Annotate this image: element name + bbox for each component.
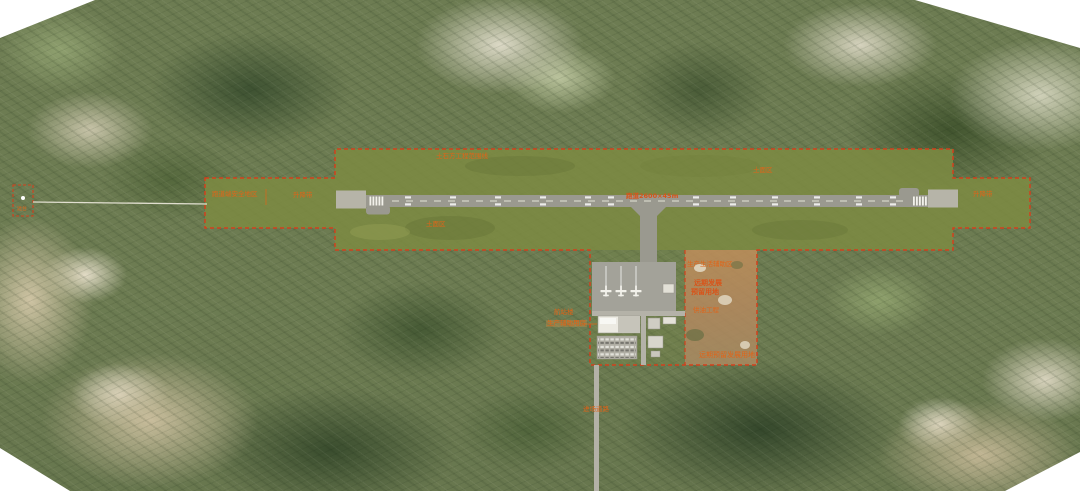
photo-corner	[0, 448, 70, 491]
label-runway: 跑道2600×45m	[626, 193, 678, 200]
label-future-dev-2: 预留用地	[691, 289, 719, 296]
navaid-dot	[21, 196, 25, 200]
graded-texture	[350, 224, 410, 240]
label-future-reserve: 远期预留发展用地	[699, 352, 755, 359]
graded-texture	[752, 220, 848, 240]
airport-plan-map: 土石方工程范围线 土面区 跑道端安全地区 升降带 跑道2600×45m 升降带 …	[0, 0, 1080, 491]
blast-pad-left	[336, 191, 366, 209]
label-strip-left: 升降带	[293, 192, 313, 199]
plan-overlay	[0, 0, 1080, 491]
earth-spot	[718, 295, 732, 305]
label-resa-left: 跑道端安全地区	[212, 191, 258, 198]
support-building	[648, 318, 660, 329]
label-terminal: 航站楼	[554, 309, 574, 316]
label-soil-area: 土面区	[426, 221, 446, 228]
runway-turnpad-right	[899, 188, 919, 197]
photo-corner	[1005, 452, 1080, 491]
earth-spot	[740, 341, 750, 349]
terminal-roof-detail	[618, 316, 640, 333]
terminal-frontage-road	[592, 311, 685, 316]
runway-turnpad-left	[366, 206, 390, 215]
taxiway	[640, 207, 657, 264]
label-navaid: 远台	[17, 207, 27, 212]
parked-cars	[598, 337, 636, 358]
label-strip-right: 升降带	[973, 191, 993, 198]
label-future-dev-1: 远期发展	[694, 280, 722, 287]
label-aux-area: 生产生活辅助区	[687, 261, 733, 268]
apron-service-building	[663, 284, 674, 293]
label-access-road: 进场道路	[583, 406, 609, 413]
support-building	[663, 317, 676, 324]
support-building	[648, 336, 663, 348]
label-fuel: 供油工程	[693, 307, 719, 314]
label-earthwork-boundary: 土石方工程范围线	[436, 153, 488, 160]
blast-pad-right	[928, 190, 958, 208]
terminal-roof-detail	[600, 318, 616, 324]
label-support-buildings: 生产辅助用房	[546, 320, 587, 327]
label-soil-area: 土面区	[753, 167, 773, 174]
support-building	[651, 351, 660, 357]
graded-texture	[405, 216, 495, 240]
internal-road	[641, 316, 646, 365]
extended-centerline	[33, 202, 207, 204]
earth-veg	[686, 329, 704, 341]
access-road	[594, 365, 599, 491]
graded-texture	[640, 155, 760, 177]
photo-corner	[0, 0, 95, 38]
photo-corner	[915, 0, 1080, 48]
